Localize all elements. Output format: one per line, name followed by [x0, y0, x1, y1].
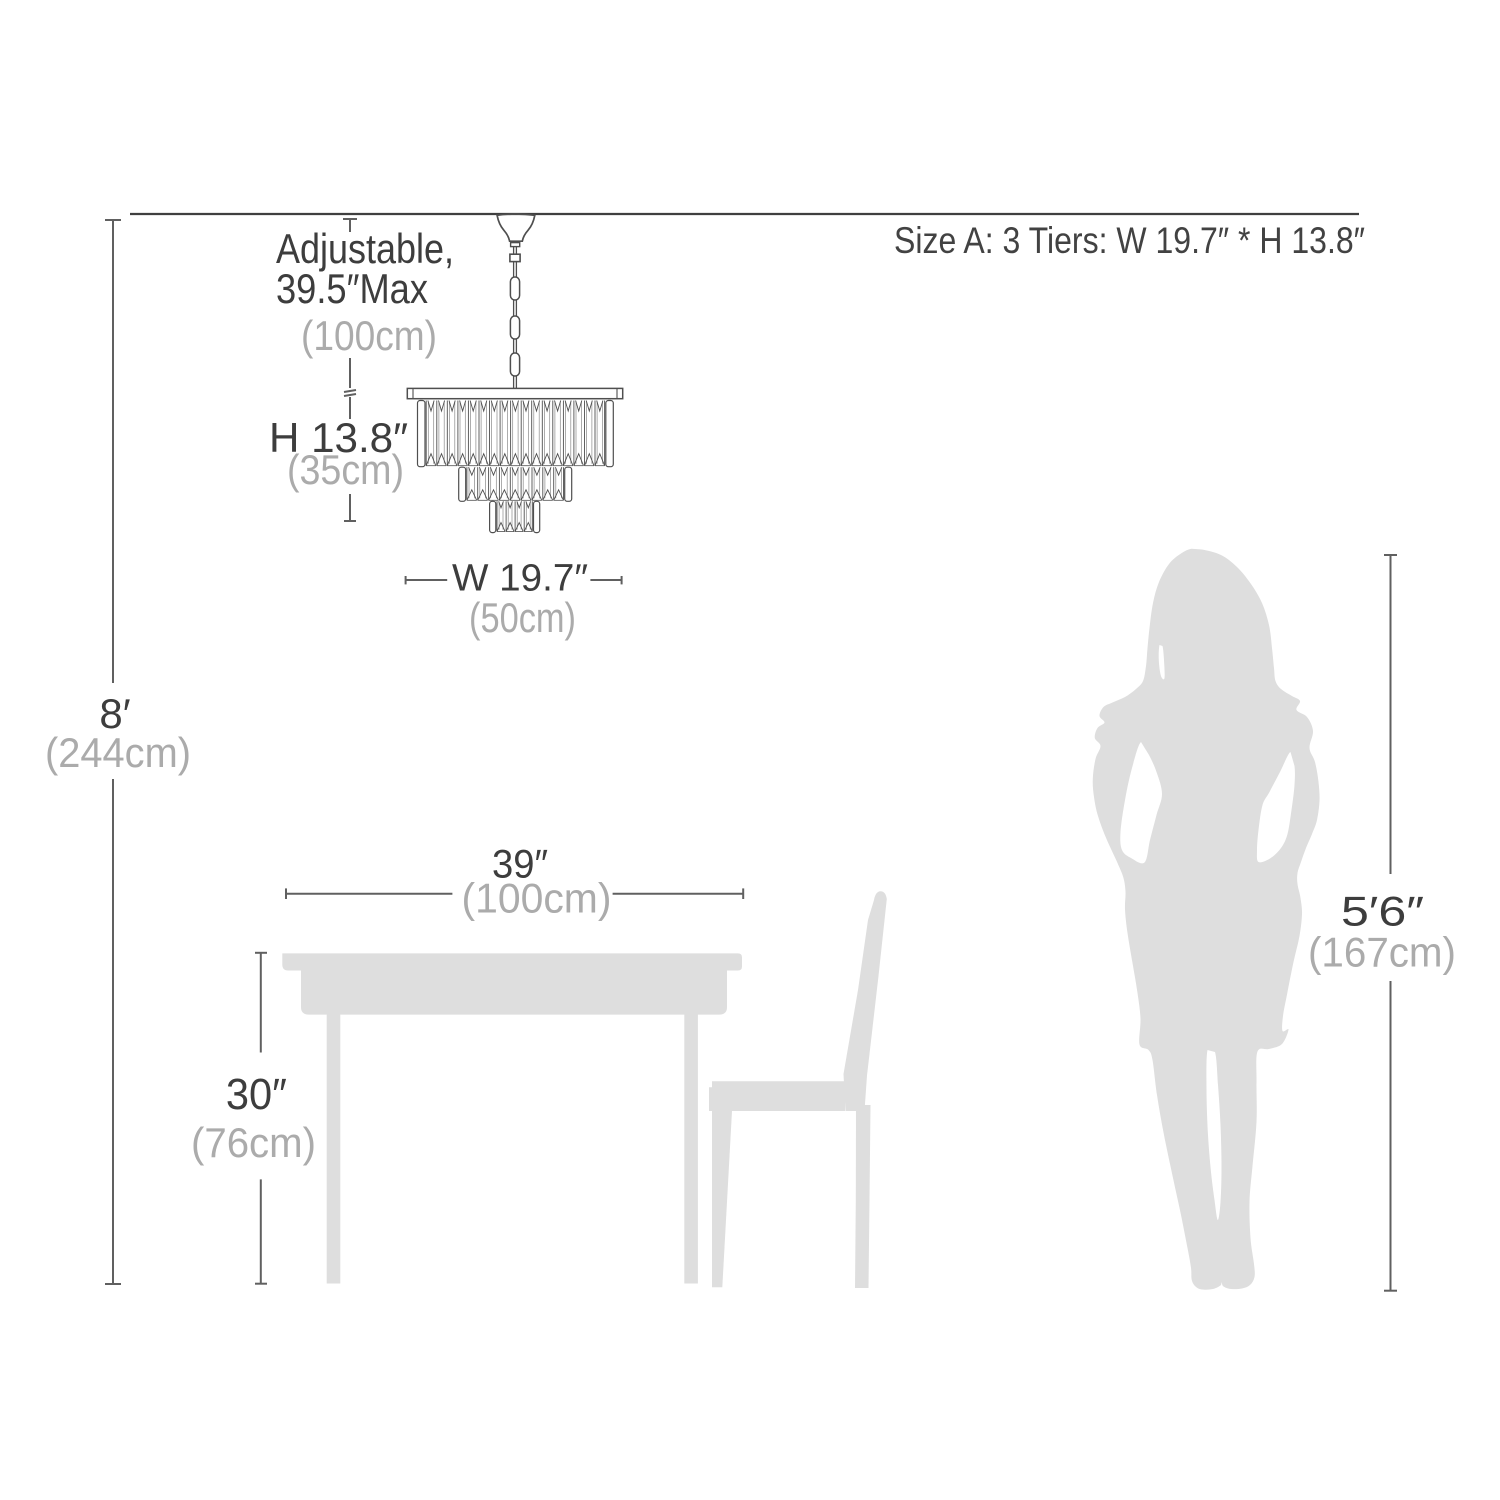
svg-text:(35cm): (35cm) [287, 446, 404, 493]
svg-text:(76cm): (76cm) [191, 1119, 316, 1166]
svg-text:5′6″: 5′6″ [1341, 887, 1424, 934]
svg-text:Size A: 3 Tiers: W 19.7″ * H 1: Size A: 3 Tiers: W 19.7″ * H 13.8″ [894, 219, 1365, 261]
svg-text:(167cm): (167cm) [1308, 929, 1456, 976]
svg-text:(100cm): (100cm) [301, 312, 437, 359]
svg-text:39.5″Max: 39.5″Max [276, 265, 428, 312]
svg-text:(100cm): (100cm) [462, 875, 612, 922]
svg-text:(50cm): (50cm) [469, 594, 576, 641]
svg-text:30″: 30″ [226, 1071, 287, 1119]
svg-text:(244cm): (244cm) [45, 729, 191, 776]
